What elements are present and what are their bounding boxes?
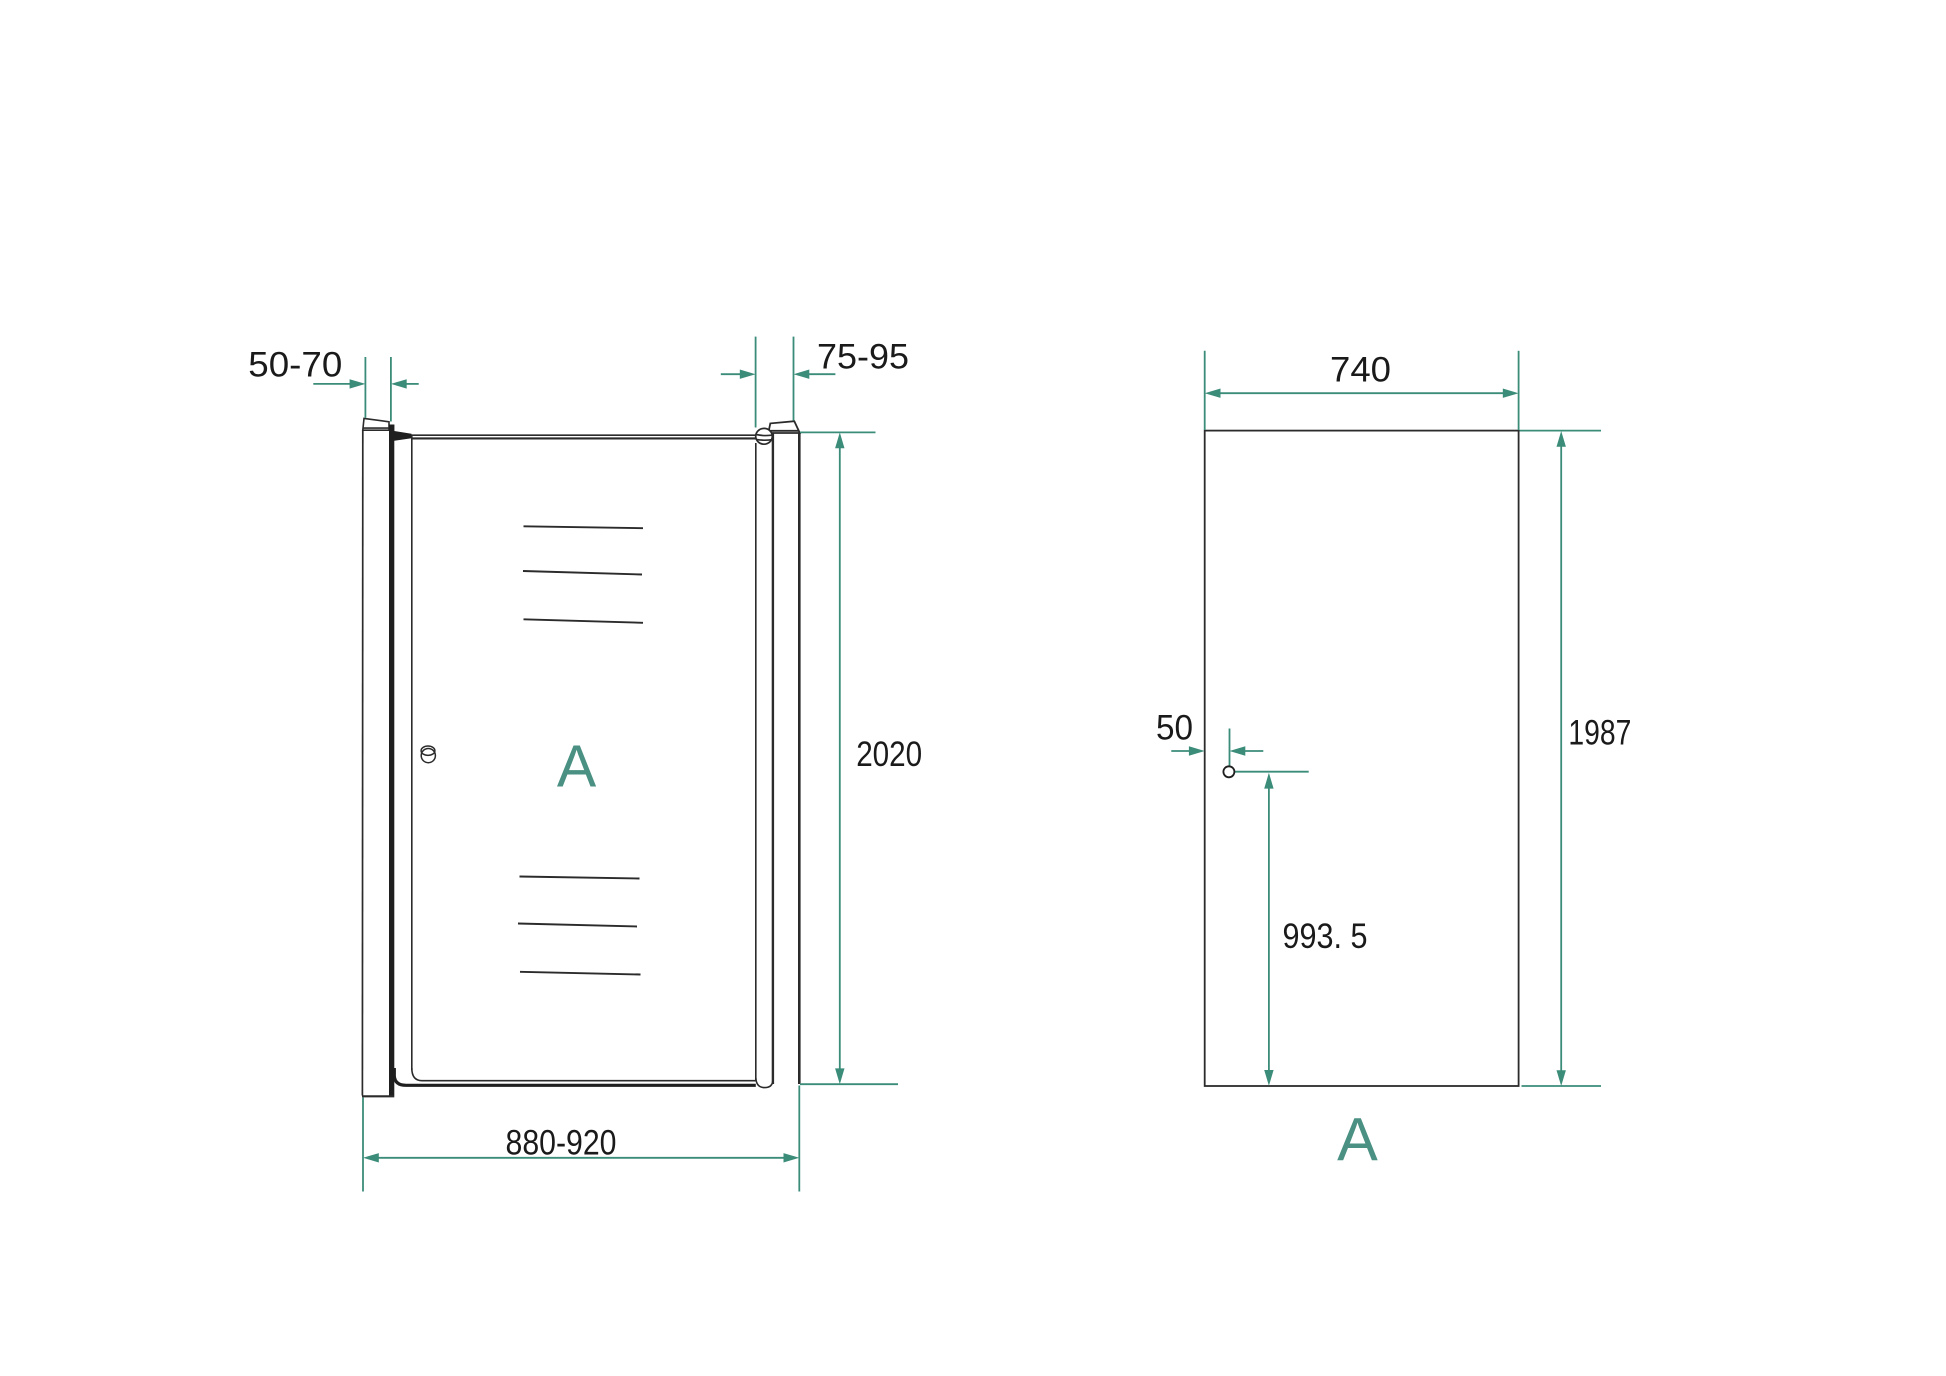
svg-text:A: A bbox=[557, 734, 597, 800]
svg-text:880-920: 880-920 bbox=[506, 1124, 617, 1163]
svg-text:A: A bbox=[1337, 1106, 1378, 1174]
svg-text:75-95: 75-95 bbox=[817, 337, 909, 376]
svg-text:2020: 2020 bbox=[856, 735, 922, 774]
svg-text:50-70: 50-70 bbox=[248, 346, 342, 385]
svg-text:993. 5: 993. 5 bbox=[1283, 917, 1368, 956]
svg-text:740: 740 bbox=[1330, 351, 1391, 390]
svg-text:1987: 1987 bbox=[1568, 714, 1631, 753]
svg-text:50: 50 bbox=[1156, 709, 1193, 748]
